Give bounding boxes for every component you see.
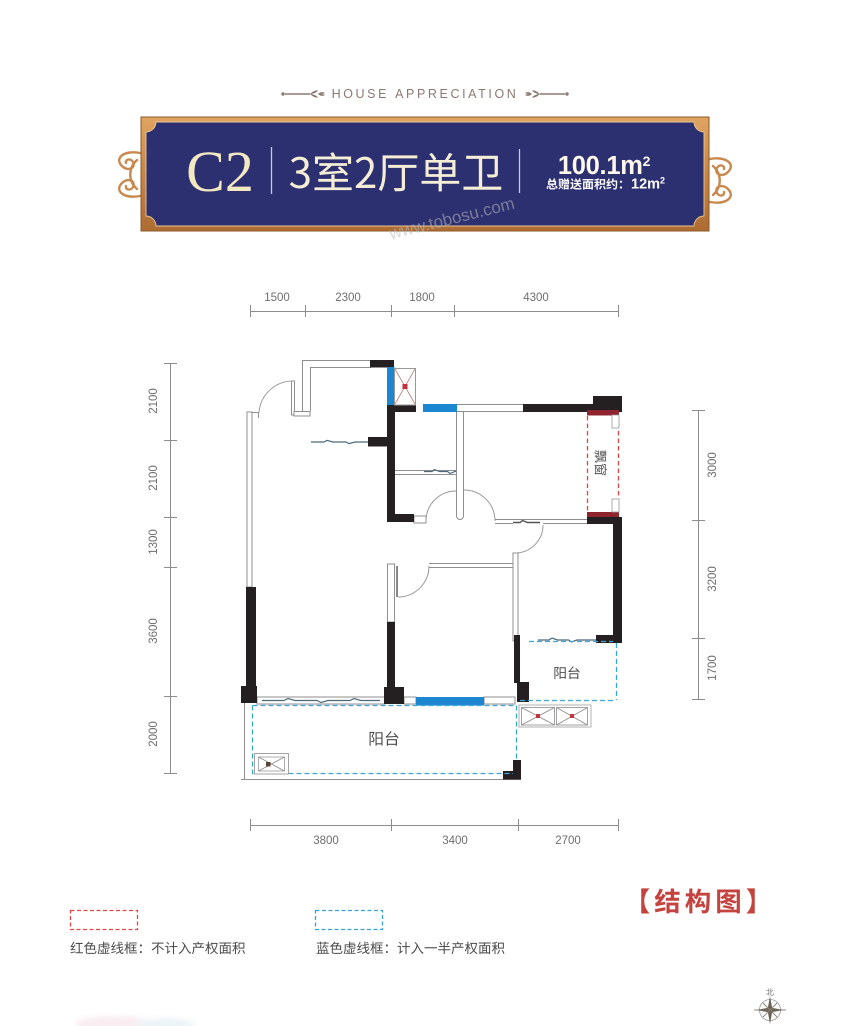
- svg-text:1700: 1700: [707, 655, 719, 681]
- svg-text:2000: 2000: [148, 721, 160, 747]
- svg-text:3400: 3400: [442, 835, 468, 847]
- svg-text:12m2: 12m2: [631, 176, 665, 193]
- svg-text:1300: 1300: [148, 529, 160, 555]
- svg-text:1800: 1800: [409, 292, 435, 304]
- svg-text:4300: 4300: [523, 292, 549, 304]
- svg-text:3200: 3200: [707, 566, 719, 592]
- svg-text:3600: 3600: [148, 618, 160, 644]
- svg-text:C2: C2: [186, 139, 254, 204]
- svg-text:2700: 2700: [555, 835, 581, 847]
- svg-text:2100: 2100: [148, 388, 160, 414]
- svg-text:2100: 2100: [148, 465, 160, 491]
- svg-text:2300: 2300: [335, 292, 361, 304]
- svg-text:3000: 3000: [707, 452, 719, 478]
- svg-text:3800: 3800: [313, 835, 339, 847]
- svg-text:1500: 1500: [264, 292, 290, 304]
